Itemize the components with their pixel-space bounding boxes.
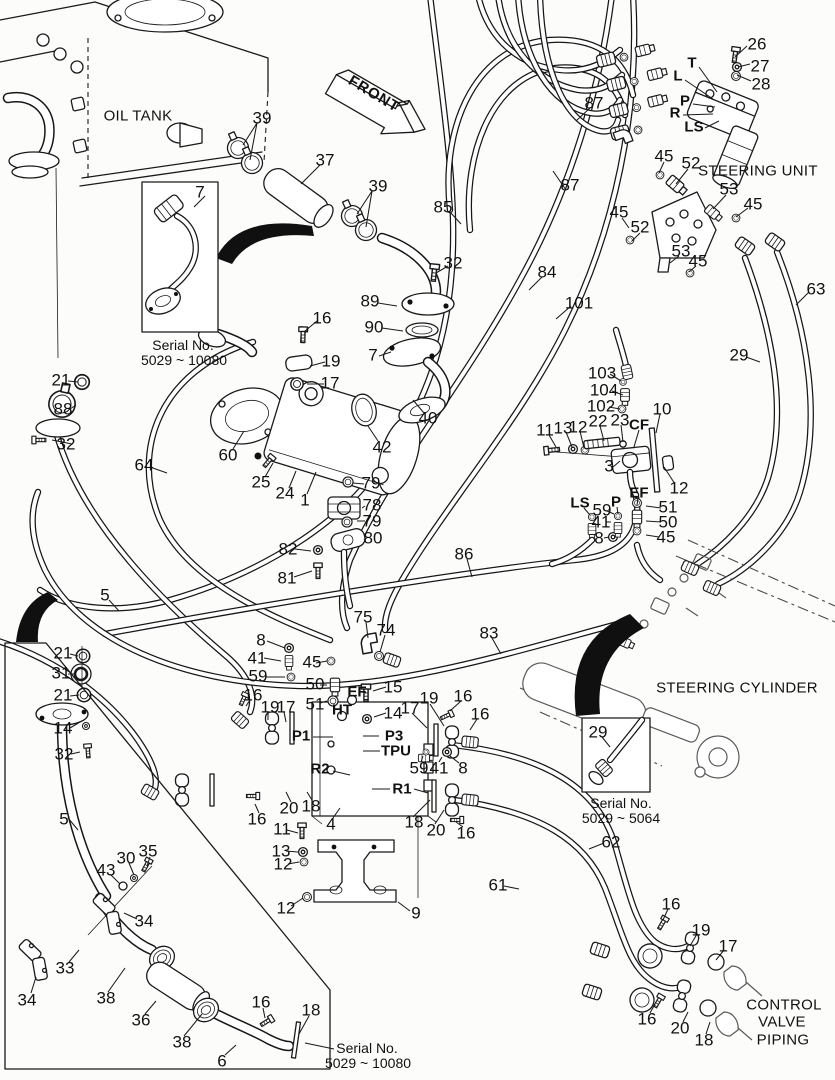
callout-label: 17 [719, 938, 738, 955]
callout-label: 74 [377, 622, 396, 639]
callout-label: 32 [57, 436, 76, 453]
callout-label: 85 [434, 199, 453, 216]
callout-label: 79 [363, 513, 382, 530]
callout-label: 34 [18, 992, 37, 1009]
callout-label: P [611, 495, 621, 510]
callout-label: 8 [256, 632, 265, 649]
callout-label: 21 [54, 645, 73, 662]
callout-label: 42 [373, 439, 392, 456]
serial-caption: Serial No. [152, 338, 213, 352]
callout-label: 19 [420, 690, 439, 707]
callout-label: 101 [565, 295, 593, 312]
callout-label: LS [684, 120, 703, 135]
callout-label: 83 [480, 625, 499, 642]
serial-caption: 5029 ~ 10080 [141, 353, 227, 367]
callout-label: L [673, 69, 682, 84]
callout-label: 10 [653, 401, 672, 418]
callout-label: 3 [604, 458, 613, 475]
callout-label: P [680, 94, 690, 109]
callout-label: 33 [56, 960, 75, 977]
callout-label: 16 [248, 811, 267, 828]
callout-label: 8 [458, 760, 467, 777]
callout-label: 45 [303, 654, 322, 671]
callout-label: 87 [561, 177, 580, 194]
callout-label: 53 [720, 181, 739, 198]
section-title: STEERING CYLINDER [656, 681, 818, 696]
callout-label: 87 [585, 95, 604, 112]
section-title: CONTROL [746, 998, 821, 1013]
callout-label: 26 [748, 36, 767, 53]
serial-caption: Serial No. [590, 796, 651, 810]
callout-label: LS [570, 496, 589, 511]
callout-label: 19 [692, 922, 711, 939]
callout-label: 60 [219, 447, 238, 464]
callout-label: 15 [384, 679, 403, 696]
callout-label: 16 [638, 1011, 657, 1028]
callout-label: R1 [392, 782, 411, 797]
callout-label: 5 [59, 811, 68, 828]
callout-label: 20 [671, 1020, 690, 1037]
callout-label: 25 [252, 474, 271, 491]
callout-label: 5 [100, 587, 109, 604]
callout-label: 8 [594, 530, 603, 547]
callout-label: 12 [670, 480, 689, 497]
callout-label: R [670, 106, 681, 121]
callout-label: 35 [139, 843, 158, 860]
callout-label: 43 [97, 862, 116, 879]
callout-label: 16 [662, 896, 681, 913]
section-title: PIPING [757, 1033, 810, 1048]
front-arrow [322, 63, 434, 152]
callout-label: 38 [173, 1034, 192, 1051]
serial-caption: 5029 ~ 10080 [325, 1056, 411, 1070]
callout-label: 20 [280, 800, 299, 817]
callout-label: 41 [430, 760, 449, 777]
callout-label: 31 [52, 665, 71, 682]
callout-label: 12 [569, 419, 588, 436]
callout-label: 59 [410, 760, 429, 777]
callout-label: 18 [302, 1002, 321, 1019]
callout-label: 75 [354, 609, 373, 626]
callout-label: 36 [132, 1012, 151, 1029]
callout-label: TPU [381, 744, 411, 759]
callout-label: 21 [54, 687, 73, 704]
callout-label: 20 [427, 822, 446, 839]
callout-label: 32 [55, 746, 74, 763]
callout-label: 29 [589, 724, 608, 741]
callout-label: 45 [655, 148, 674, 165]
callout-label: 103 [588, 365, 616, 382]
callout-label: 11 [536, 422, 554, 439]
callout-label: 81 [278, 570, 297, 587]
callout-label: P1 [292, 729, 310, 744]
callout-label: 40 [419, 410, 438, 427]
callout-label: 17 [401, 700, 420, 717]
section-title: VALVE [758, 1015, 806, 1030]
callout-label: 16 [471, 706, 490, 723]
callout-label: HT [332, 703, 352, 718]
callout-label: 84 [538, 264, 557, 281]
callout-label: 62 [602, 834, 621, 851]
callout-label: 82 [279, 541, 298, 558]
callout-label: 45 [610, 204, 629, 221]
callout-label: 14 [54, 720, 73, 737]
callout-label: 90 [365, 319, 384, 336]
callout-label: 61 [489, 877, 508, 894]
callout-label: 16 [252, 994, 271, 1011]
callout-label: 32 [444, 255, 463, 272]
callout-label: 41 [248, 650, 267, 667]
callout-label: 11 [273, 821, 291, 838]
callout-label: 28 [752, 76, 771, 93]
callout-label: 1 [300, 492, 309, 509]
parts-diagram-page: 262728TLPRLS4552534545525345878785841016… [0, 0, 835, 1080]
callout-label: 30 [117, 850, 136, 867]
callout-label: 22 [589, 413, 608, 430]
callout-label: 16 [457, 825, 476, 842]
callout-label: 50 [306, 676, 325, 693]
section-title: STEERING UNIT [698, 164, 818, 179]
callout-label: 59 [249, 668, 268, 685]
callout-label: 12 [274, 856, 293, 873]
callout-label: 17 [277, 699, 296, 716]
callout-label: 7 [195, 184, 204, 201]
callout-label: 19 [322, 353, 341, 370]
callout-label: 4 [326, 816, 335, 833]
callout-label: T [687, 56, 696, 71]
callout-label: 23 [611, 412, 630, 429]
callout-label: CF [629, 418, 649, 433]
callout-label: 21 [52, 372, 71, 389]
callout-label: 34 [135, 913, 154, 930]
serial-caption: 5029 ~ 5064 [582, 811, 660, 825]
callout-label: 37 [316, 152, 335, 169]
callout-label: 12 [277, 900, 296, 917]
callout-label: 29 [730, 347, 749, 364]
callout-label: 18 [405, 814, 424, 831]
callout-label: EF [347, 685, 366, 700]
callout-label: 63 [807, 281, 826, 298]
callout-label: 16 [313, 310, 332, 327]
callout-label: 45 [657, 529, 676, 546]
callout-label: 18 [302, 798, 321, 815]
steering-cylinder-ghost [518, 540, 835, 778]
callout-label: 6 [217, 1053, 226, 1070]
callout-label: 79 [362, 475, 381, 492]
callout-label: 88 [54, 401, 73, 418]
callout-label: 39 [369, 178, 388, 195]
callout-label: 51 [306, 696, 325, 713]
callout-label: 18 [695, 1032, 714, 1049]
callout-label: 24 [276, 485, 295, 502]
callout-label: EF [629, 486, 648, 501]
callout-label: 86 [455, 546, 474, 563]
serial-caption: Serial No. [336, 1041, 397, 1055]
callout-label: 89 [361, 293, 380, 310]
callout-label: 7 [368, 347, 377, 364]
callout-label: 27 [751, 58, 770, 75]
callout-label: 45 [689, 253, 708, 270]
callout-label: 39 [253, 110, 272, 127]
oil-tank [0, 0, 268, 358]
callout-label: 80 [364, 530, 383, 547]
callout-label: R2 [310, 762, 329, 777]
callout-label: 45 [744, 196, 763, 213]
callout-label: 52 [631, 219, 650, 236]
section-title: OIL TANK [104, 109, 173, 124]
callout-label: 16 [454, 688, 473, 705]
callout-label: 64 [135, 457, 154, 474]
callout-label: 38 [97, 990, 116, 1007]
callout-label: 9 [411, 905, 420, 922]
callout-label: 17 [321, 375, 340, 392]
callout-label: P3 [385, 729, 403, 744]
